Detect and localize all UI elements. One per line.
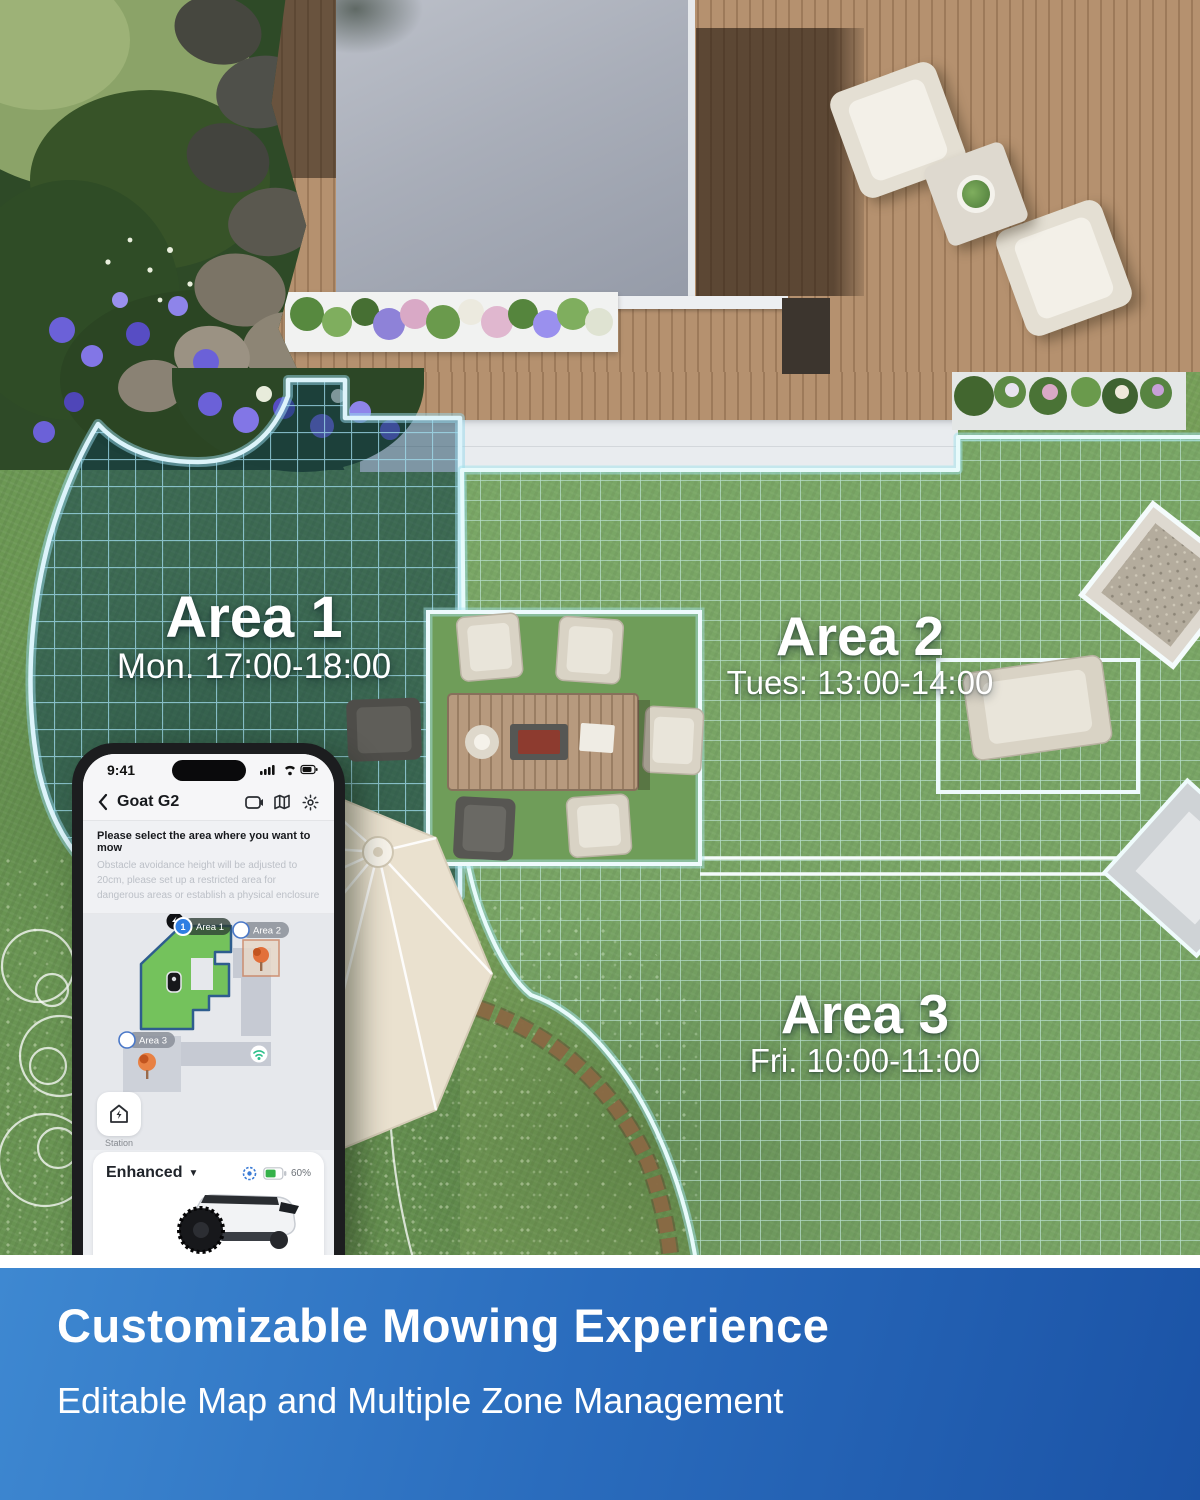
yard-label-area3: Area 3 Fri. 10:00-11:00 [640,986,1090,1080]
camera-icon[interactable] [244,792,264,812]
back-icon[interactable] [97,793,109,811]
mower-battery-icon [263,1167,287,1180]
station-house-icon [107,1102,131,1126]
map-robot-icon [167,972,181,992]
app-map: 1 Area 1 Area 2 Area 3 [83,914,334,1092]
battery-percent: 60% [291,1168,311,1179]
marketing-banner: Customizable Mowing Experience Editable … [0,1268,1200,1500]
area1-title: Area 1 [58,588,450,647]
dining-table [448,694,650,790]
area1-schedule: Mon. 17:00-18:00 [58,647,450,687]
map-label-area3[interactable]: Area 3 [119,1032,175,1048]
status-time: 9:41 [107,762,135,778]
banner-subtitle: Editable Map and Multiple Zone Managemen… [57,1380,783,1422]
mode-dropdown[interactable]: Enhanced [106,1164,182,1182]
chevron-down-icon[interactable]: ▼ [188,1168,198,1179]
station-button[interactable] [97,1092,141,1136]
status-icons [260,763,318,776]
area2-schedule: Tues: 13:00-14:00 [640,664,1080,702]
banner-top-gap [0,1255,1200,1268]
signal-icon [260,765,275,775]
svg-text:Area 3: Area 3 [139,1036,167,1047]
instruction-title: Please select the area where you want to… [97,830,320,854]
area3-title: Area 3 [640,986,1090,1042]
status-bar: 9:41 [83,754,334,784]
dynamic-island [172,760,246,781]
instruction-body: Obstacle avoidance height will be adjust… [97,858,320,903]
settings-gear-icon[interactable] [300,792,320,812]
banner-title: Customizable Mowing Experience [57,1298,829,1353]
map-label-area1[interactable]: 1 Area 1 [175,918,232,935]
gps-status-icon [242,1166,257,1181]
station-row: Station [83,1092,334,1150]
area2-title: Area 2 [640,608,1080,664]
svg-text:Area 2: Area 2 [253,926,281,937]
area3-schedule: Fri. 10:00-11:00 [640,1042,1090,1080]
map-beacon-icon [251,1046,268,1063]
phone-screen: 9:41 [83,754,334,1257]
page-title: Goat G2 [117,793,179,811]
map-icon[interactable] [272,792,292,812]
wifi-icon [285,766,295,775]
instruction-panel: Please select the area where you want to… [83,821,334,914]
svg-text:1: 1 [180,922,185,932]
phone-mockup: 9:41 [72,743,345,1257]
map-restricted-zone [243,940,279,976]
battery-icon [301,766,318,774]
mower-image [106,1182,311,1256]
product-marketing-image: Area 1 Mon. 17:00-18:00 Area 2 Tues: 13:… [0,0,1200,1500]
yard-label-area1: Area 1 Mon. 17:00-18:00 [58,588,450,687]
map-zone-area1[interactable] [141,926,231,1029]
nav-bar: Goat G2 [83,784,334,821]
svg-text:Area 1: Area 1 [196,922,224,933]
yard-label-area2: Area 2 Tues: 13:00-14:00 [640,608,1080,702]
map-label-area2[interactable]: Area 2 [233,922,289,938]
station-label: Station [97,1138,141,1148]
mode-card: Enhanced ▼ 60% [93,1152,324,1257]
